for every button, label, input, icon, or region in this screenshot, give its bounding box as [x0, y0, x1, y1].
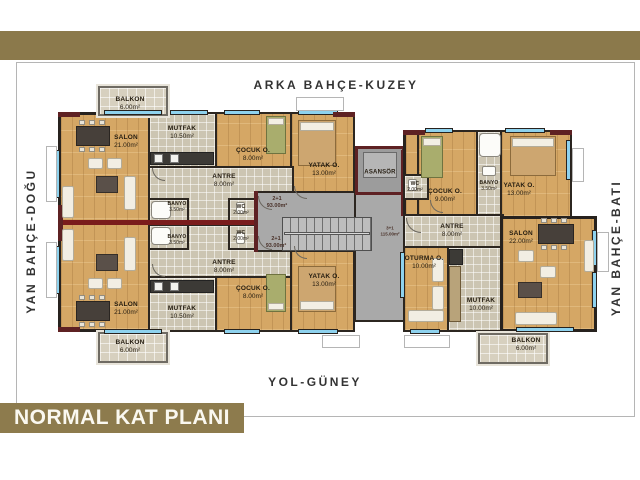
stair-rail — [284, 232, 370, 235]
armchair — [518, 250, 534, 262]
bathtub — [479, 133, 501, 157]
label-salon-r: SALON22.00m² — [509, 230, 533, 246]
chair — [541, 245, 547, 250]
label-antre-tl: ANTRE8.00m² — [212, 173, 235, 189]
floor-plan-page: BALKON6.00m² SALON21.00m² MUTFAK10.50m² … — [0, 0, 640, 480]
chair — [89, 147, 95, 152]
label-unit-bl: 2+193.00m² — [266, 236, 287, 250]
rug — [96, 254, 118, 271]
label-elevator: ASANSÖR — [364, 169, 395, 177]
sofa — [62, 229, 74, 261]
window — [224, 110, 260, 115]
label-salon-bl: SALON21.00m² — [114, 301, 138, 317]
rug — [96, 176, 118, 193]
chair — [79, 147, 85, 152]
label-cocuk-bl: ÇOCUK O.8.00m² — [236, 285, 270, 301]
wall-accent — [333, 112, 355, 117]
chair — [561, 245, 567, 250]
sofa — [408, 310, 444, 322]
label-cocuk-r: ÇOCUK O.9.00m² — [428, 188, 462, 204]
wall-accent — [58, 112, 80, 117]
window — [505, 128, 545, 133]
rug — [518, 282, 542, 298]
label-antre-bl: ANTRE8.00m² — [212, 259, 235, 275]
pillow — [268, 118, 284, 125]
window-sill — [572, 148, 584, 182]
window-sill — [322, 335, 360, 348]
unit-divider-wall — [60, 220, 256, 225]
chair — [551, 245, 557, 250]
window — [566, 140, 571, 180]
chair — [99, 322, 105, 327]
label-antre-r: ANTRE8.00m² — [440, 223, 463, 239]
pillow — [512, 138, 554, 147]
chair — [561, 218, 567, 223]
armchair — [107, 158, 122, 169]
chair — [79, 120, 85, 125]
window — [592, 272, 597, 308]
label-yatak-r: YATAK O.13.00m² — [503, 182, 534, 198]
window-sill — [296, 97, 344, 111]
label-unit-r: 3+1115.00m² — [380, 225, 399, 236]
chair — [99, 120, 105, 125]
label-balkon-r: BALKON6.00m² — [511, 337, 540, 353]
label-balkon-bl: BALKON6.00m² — [115, 339, 144, 355]
window — [224, 329, 260, 334]
window — [298, 329, 338, 334]
pillow — [300, 122, 334, 131]
dining-table — [76, 126, 110, 146]
label-banyo-r: BANYO3.50m² — [479, 180, 498, 193]
chair — [551, 218, 557, 223]
compass-east-label: YAN BAHÇE-DOĞU — [24, 168, 38, 313]
sofa — [432, 286, 444, 310]
chair — [79, 295, 85, 300]
chair — [541, 218, 547, 223]
window — [425, 128, 453, 133]
stove — [154, 282, 163, 291]
chair — [89, 120, 95, 125]
label-wc-bl: WC2.00m² — [233, 230, 249, 243]
armchair — [88, 158, 103, 169]
sofa — [62, 186, 74, 218]
label-mutfak-r: MUTFAK10.00m² — [467, 297, 495, 313]
label-cocuk-tl: ÇOCUK O.8.00m² — [236, 147, 270, 163]
window — [516, 327, 574, 332]
stove — [154, 154, 163, 163]
chair — [99, 147, 105, 152]
window — [170, 110, 208, 115]
label-wc-tl: WC2.00m² — [233, 204, 249, 217]
title-banner: NORMAL KAT PLANI — [0, 403, 244, 433]
armchair — [88, 278, 103, 289]
label-banyo-bl: BANYO3.50m² — [167, 234, 186, 247]
compass-south-label: YOL-GÜNEY — [268, 375, 362, 389]
kitchen-cabinet — [449, 266, 461, 322]
label-wc-r: WC2.00m² — [407, 181, 423, 194]
sink — [170, 282, 179, 291]
wall-accent — [550, 130, 572, 135]
compass-north-label: ARKA BAHÇE-KUZEY — [254, 78, 419, 92]
window-sill — [46, 146, 57, 202]
label-banyo-tl: BANYO3.50m² — [167, 201, 186, 214]
armchair — [107, 278, 122, 289]
window — [104, 329, 162, 334]
kitchen-counter — [449, 249, 463, 265]
sofa — [124, 176, 136, 210]
dining-table — [538, 224, 574, 244]
label-yatak-tl: YATAK O.13.00m² — [308, 162, 339, 178]
label-unit-tl: 2+193.00m² — [267, 196, 288, 210]
armchair — [540, 266, 556, 278]
pillow — [300, 301, 334, 310]
window-sill — [404, 335, 450, 348]
sofa — [584, 240, 594, 272]
sofa — [124, 237, 136, 271]
sink — [170, 154, 179, 163]
label-mutfak-bl: MUTFAK10.50m² — [168, 305, 196, 321]
wall-accent — [403, 130, 425, 135]
header-band — [0, 31, 640, 60]
dining-table — [76, 301, 110, 321]
sink — [482, 166, 496, 176]
chair — [89, 322, 95, 327]
chair — [79, 322, 85, 327]
window — [410, 329, 440, 334]
core-wall-west — [254, 191, 258, 252]
compass-west-label: YAN BAHÇE-BATI — [609, 180, 623, 316]
window-sill — [46, 242, 57, 298]
label-mutfak-tl: MUTFAK10.50m² — [168, 125, 196, 141]
label-salon-tl: SALON21.00m² — [114, 134, 138, 150]
page-title: NORMAL KAT PLANI — [14, 406, 230, 430]
chair — [99, 295, 105, 300]
window-sill — [597, 232, 609, 272]
chair — [89, 295, 95, 300]
label-yatak-bl: YATAK O.13.00m² — [308, 273, 339, 289]
pillow — [423, 138, 441, 146]
wall-accent — [58, 327, 80, 332]
label-oturma-r: OTURMA O.10.00m² — [405, 255, 444, 271]
label-balkon-tl: BALKON6.00m² — [115, 96, 144, 112]
sofa — [515, 312, 557, 325]
pillow — [268, 303, 284, 310]
